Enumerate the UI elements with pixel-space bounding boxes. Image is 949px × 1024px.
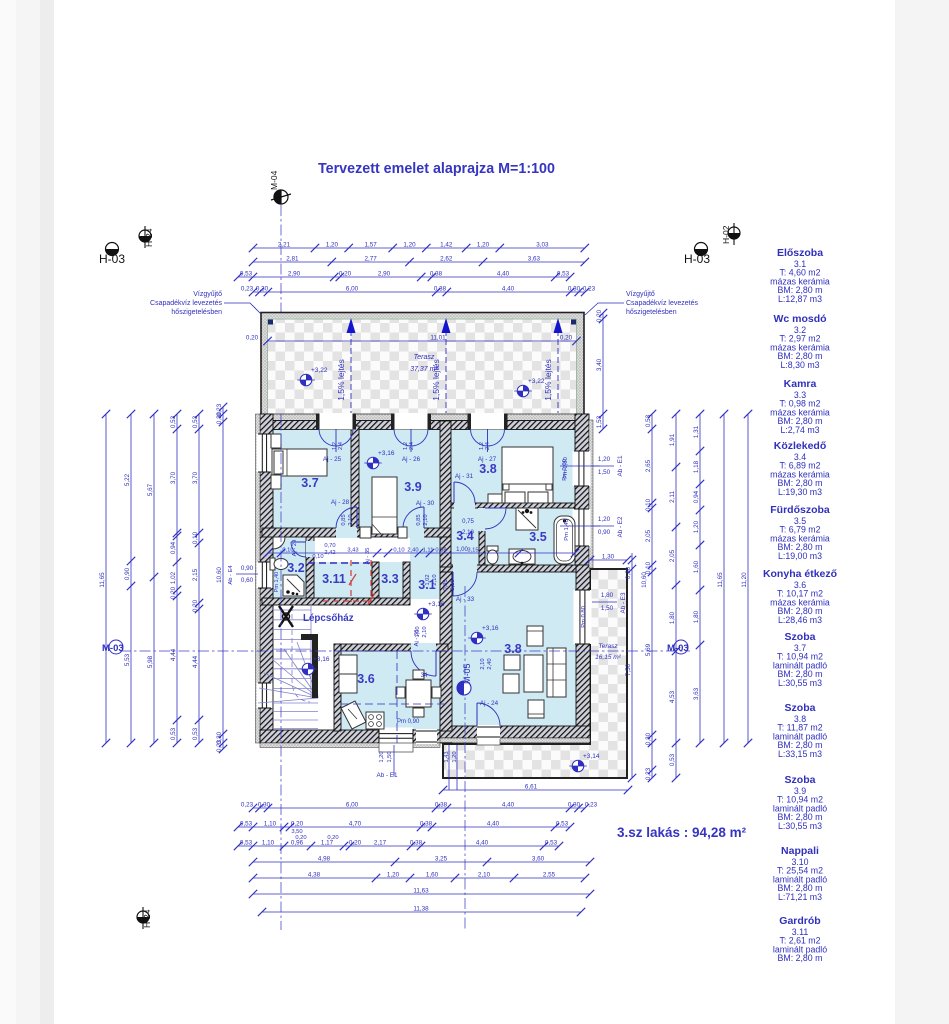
svg-text:Szoba: Szoba [785,702,816,714]
svg-text:Csapadékvíz levezetés: Csapadékvíz levezetés [150,300,222,307]
svg-text:0,90: 0,90 [241,565,254,572]
svg-text:1,80: 1,80 [669,611,676,624]
svg-text:Gardrób: Gardrób [779,915,820,927]
svg-text:5,67: 5,67 [147,483,154,496]
svg-text:0,38: 0,38 [434,286,447,293]
svg-text:2,10: 2,10 [432,574,438,585]
svg-text:1,50: 1,50 [387,751,393,762]
svg-text:2,10: 2,10 [480,658,486,669]
svg-text:Kamra: Kamra [784,378,817,390]
svg-text:H-24: H-24 [142,909,152,928]
svg-text:Aj - 29: Aj - 29 [292,540,298,557]
svg-text:2,17: 2,17 [374,840,387,847]
svg-text:2,05: 2,05 [669,549,676,562]
svg-text:4,40: 4,40 [502,286,515,293]
svg-text:Ab - E2: Ab - E2 [617,516,624,537]
svg-text:11,63: 11,63 [413,888,429,895]
svg-text:1,50: 1,50 [598,469,611,476]
svg-text:2,15: 2,15 [192,568,199,581]
svg-text:3.8: 3.8 [479,462,496,476]
svg-text:Aj - 25: Aj - 25 [323,456,342,463]
svg-text:2,10: 2,10 [423,514,429,525]
svg-text:3,63: 3,63 [528,256,541,263]
svg-text:1,02: 1,02 [170,571,177,584]
svg-text:2,90: 2,90 [378,271,391,278]
svg-text:5,98: 5,98 [147,655,154,668]
svg-text:0,20: 0,20 [291,821,304,828]
svg-text:3.3: 3.3 [381,572,398,586]
svg-text:1,11: 1,11 [423,548,434,554]
svg-text:2,90: 2,90 [288,271,301,278]
svg-text:L:2,74 m3: L:2,74 m3 [780,425,819,435]
svg-text:L:30,55 m3: L:30,55 m3 [778,678,822,688]
svg-text:0,20: 0,20 [349,840,362,847]
svg-text:hőszigetelésben: hőszigetelésben [626,309,677,316]
svg-text:0,23: 0,23 [216,739,223,752]
svg-text:11,01: 11,01 [430,335,446,342]
svg-text:H-03: H-03 [684,252,710,266]
svg-text:+3,16: +3,16 [428,601,445,608]
svg-text:3,60: 3,60 [532,856,545,863]
svg-text:L:19,00 m3: L:19,00 m3 [778,551,822,561]
svg-text:0,90: 0,90 [598,529,611,536]
svg-text:0,30: 0,30 [568,286,581,293]
svg-text:Vízgyűjtő: Vízgyűjtő [626,291,655,298]
svg-text:0,90: 0,90 [124,567,131,580]
svg-text:0,30: 0,30 [645,732,652,745]
svg-text:3.sz lakás : 94,28 m²: 3.sz lakás : 94,28 m² [617,825,747,840]
svg-text:Közlekedő: Közlekedő [774,440,827,452]
svg-text:0,85: 0,85 [443,579,449,590]
svg-text:2,55: 2,55 [543,872,556,879]
svg-text:1,30: 1,30 [602,554,615,561]
svg-text:M-04: M-04 [269,170,279,190]
svg-text:2,21: 2,21 [278,242,291,249]
svg-text:1,20: 1,20 [598,516,611,523]
svg-text:0,20: 0,20 [192,599,199,612]
svg-text:0,23: 0,23 [583,286,596,293]
svg-text:0,23: 0,23 [241,802,254,809]
svg-text:4,44: 4,44 [192,655,199,668]
svg-text:2,10: 2,10 [462,530,474,536]
svg-text:11,65: 11,65 [717,572,724,588]
svg-text:0,53: 0,53 [669,753,676,766]
svg-text:4,70: 4,70 [349,821,362,828]
svg-text:3.6: 3.6 [357,672,374,686]
svg-text:0,75: 0,75 [462,519,474,525]
svg-text:10,60: 10,60 [641,572,648,588]
svg-text:Csapadékvíz levezetés: Csapadékvíz levezetés [626,300,698,307]
svg-text:H-02: H-02 [721,225,731,244]
svg-text:Lépcsőház: Lépcsőház [303,613,354,624]
svg-text:0,53: 0,53 [556,821,569,828]
svg-text:2,4: 2,4 [338,441,344,450]
svg-text:2,4: 2,4 [409,441,415,450]
svg-text:Terasz: Terasz [414,354,435,361]
svg-text:2,62: 2,62 [440,256,453,263]
svg-text:0,53: 0,53 [170,727,177,740]
svg-text:Ab - E4: Ab - E4 [228,565,234,585]
svg-text:1,53: 1,53 [596,415,603,428]
svg-text:0,60: 0,60 [241,577,254,584]
svg-text:4,98: 4,98 [318,856,331,863]
svg-text:Fürdőszoba: Fürdőszoba [770,504,830,516]
svg-text:5,69: 5,69 [645,643,652,656]
svg-text:10,60: 10,60 [216,567,223,583]
svg-text:2,05: 2,05 [645,529,652,542]
svg-text:0,10: 0,10 [393,548,404,554]
svg-text:2,11: 2,11 [669,491,676,503]
svg-text:Pm 1,40: Pm 1,40 [564,519,570,541]
svg-text:Aj - 30: Aj - 30 [416,500,435,507]
svg-text:L:30,55 m3: L:30,55 m3 [778,821,822,831]
svg-text:1,5% lejtés: 1,5% lejtés [543,359,553,401]
svg-text:0,30: 0,30 [256,286,269,293]
svg-text:Ab - E3: Ab - E3 [620,592,627,613]
svg-text:1,00: 1,00 [456,547,468,553]
svg-text:1,20: 1,20 [379,751,385,762]
svg-text:2,4: 2,4 [485,441,491,450]
svg-text:Aj - 31: Aj - 31 [455,473,474,480]
svg-text:1,20: 1,20 [477,242,490,249]
svg-text:1,20: 1,20 [403,242,416,249]
svg-text:3,25: 3,25 [435,856,448,863]
svg-text:Terasz: Terasz [598,643,618,650]
svg-text:1,42: 1,42 [440,242,453,249]
svg-text:6,00: 6,00 [346,286,359,293]
svg-text:4,40: 4,40 [476,840,489,847]
svg-text:2,42: 2,42 [324,550,335,556]
svg-text:4,40: 4,40 [497,271,510,278]
svg-text:1,91: 1,91 [669,433,676,446]
svg-text:11,20: 11,20 [741,572,748,588]
svg-text:1,5% lejtés: 1,5% lejtés [336,359,346,401]
svg-text:3,03: 3,03 [536,242,549,249]
svg-text:Ab - E1: Ab - E1 [617,455,624,476]
svg-text:Vízgyűjtő: Vízgyűjtő [193,291,222,298]
svg-text:+3,16: +3,16 [482,625,499,632]
svg-text:+3,16: +3,16 [313,656,330,663]
svg-text:Pm 0,80: Pm 0,80 [563,457,569,479]
svg-text:34: 34 [421,673,428,679]
svg-text:4,40: 4,40 [502,802,515,809]
svg-text:L:71,21 m3: L:71,21 m3 [778,892,822,902]
svg-text:4,44: 4,44 [170,648,177,661]
svg-text:2,10: 2,10 [422,626,428,637]
svg-text:0,30: 0,30 [568,802,581,809]
svg-text:0,38: 0,38 [410,840,423,847]
svg-text:3.8: 3.8 [504,642,521,656]
svg-text:0,30: 0,30 [258,802,271,809]
svg-text:2,40: 2,40 [407,548,418,554]
svg-text:1,10: 1,10 [264,821,277,828]
svg-text:Nappali: Nappali [781,845,819,857]
svg-text:Előszoba: Előszoba [777,247,823,259]
svg-text:1,20: 1,20 [693,520,700,533]
svg-text:Pm 1,40: Pm 1,40 [274,572,280,592]
svg-text:M-03: M-03 [102,643,124,654]
svg-text:3,70: 3,70 [192,471,199,484]
svg-text:0,20: 0,20 [170,586,177,599]
svg-text:Aj - 26: Aj - 26 [402,456,421,463]
svg-text:0,85: 0,85 [341,514,347,525]
svg-text:0,20: 0,20 [339,271,352,278]
svg-text:0,10: 0,10 [645,498,652,511]
svg-text:Tervezett emelet alaprajza M=: Tervezett emelet alaprajza M=1:100 [318,161,555,177]
svg-text:6,00: 6,00 [346,802,359,809]
svg-text:Ab - E1: Ab - E1 [377,772,398,779]
svg-text:3.2: 3.2 [287,561,304,575]
svg-text:0,30: 0,30 [625,566,632,579]
svg-text:6,61: 6,61 [525,784,538,791]
svg-text:3.7: 3.7 [301,476,318,490]
svg-text:16,15 m²: 16,15 m² [595,654,621,661]
svg-text:0,53: 0,53 [170,415,177,428]
svg-text:0,96: 0,96 [291,840,304,847]
svg-text:Konyha étkező: Konyha étkező [763,568,837,580]
svg-text:1,10: 1,10 [262,840,275,847]
svg-text:Aj - 27: Aj - 27 [478,456,497,463]
svg-text:3,70: 3,70 [170,471,177,484]
svg-text:0,20: 0,20 [560,335,573,342]
svg-text:1,18: 1,18 [693,460,700,473]
svg-text:2,10: 2,10 [348,514,354,525]
svg-text:2,40: 2,40 [487,658,493,669]
svg-text:0,38: 0,38 [435,802,448,809]
svg-text:Szoba: Szoba [785,774,816,786]
svg-text:M-05: M-05 [462,663,472,684]
svg-text:0,53: 0,53 [192,415,199,428]
svg-text:Aj - 35: Aj - 35 [365,548,371,565]
svg-text:0,38: 0,38 [420,821,433,828]
svg-text:BM: 2,80 m: BM: 2,80 m [778,953,823,963]
svg-text:4,40: 4,40 [487,821,500,828]
svg-text:0,23: 0,23 [585,802,598,809]
svg-text:L:12,87 m3: L:12,87 m3 [778,294,822,304]
svg-text:Aj - 33: Aj - 33 [456,596,475,603]
svg-text:0,53: 0,53 [545,840,558,847]
svg-text:1,17: 1,17 [321,840,334,847]
svg-text:0,20: 0,20 [596,309,603,322]
svg-text:2,77: 2,77 [365,256,378,263]
svg-text:hőszigetelésben: hőszigetelésben [171,309,222,316]
svg-text:3,50: 3,50 [291,829,302,835]
svg-text:0,38: 0,38 [430,271,443,278]
svg-text:0,70: 0,70 [324,543,335,549]
svg-text:1,50: 1,50 [601,605,614,612]
svg-text:3.11: 3.11 [322,572,346,586]
svg-text:+3,22: +3,22 [311,367,328,374]
svg-text:Aj - 28: Aj - 28 [331,499,350,506]
svg-text:1,80: 1,80 [601,592,614,599]
svg-text:5,53: 5,53 [124,653,131,666]
svg-text:3.5: 3.5 [529,530,546,544]
svg-text:H-24: H-24 [144,228,154,247]
svg-text:+3,16: +3,16 [378,450,395,457]
svg-text:11,65: 11,65 [99,572,106,588]
svg-text:2,10: 2,10 [450,579,456,590]
svg-text:11,38: 11,38 [413,906,429,913]
svg-text:1,20: 1,20 [598,456,611,463]
svg-text:2,81: 2,81 [286,256,299,263]
svg-text:4,53: 4,53 [669,690,676,703]
svg-text:1,57: 1,57 [365,242,378,249]
svg-text:1,31: 1,31 [693,425,700,438]
svg-text:L:28,46 m3: L:28,46 m3 [778,615,822,625]
svg-text:0,94: 0,94 [693,490,700,503]
svg-text:0,53: 0,53 [240,840,253,847]
svg-text:7,50: 7,50 [625,663,632,676]
svg-text:Aj - 36: Aj - 36 [414,630,420,647]
svg-text:Aj - 24: Aj - 24 [480,700,499,707]
svg-text:2,65: 2,65 [645,459,652,472]
svg-text:1,20: 1,20 [387,872,400,879]
svg-text:1,02: 1,02 [425,574,431,585]
svg-text:5,22: 5,22 [124,473,131,486]
svg-text:0,23: 0,23 [645,767,652,780]
svg-text:Pm 0,80: Pm 0,80 [581,606,587,628]
svg-text:0,94: 0,94 [170,541,177,554]
svg-text:Wc mosdó: Wc mosdó [773,313,826,325]
svg-text:0,23: 0,23 [241,286,254,293]
svg-text:2,10: 2,10 [478,872,491,879]
svg-text:1,20: 1,20 [326,242,339,249]
svg-text:+3,14: +3,14 [583,753,600,760]
svg-text:0,30: 0,30 [216,411,223,424]
svg-text:3,43: 3,43 [347,548,358,554]
svg-text:L:33,15 m3: L:33,15 m3 [778,749,822,759]
svg-text:0,20: 0,20 [246,335,259,342]
svg-text:1,60: 1,60 [693,560,700,573]
svg-text:1,60: 1,60 [426,872,439,879]
svg-text:Szoba: Szoba [785,631,816,643]
svg-text:3.9: 3.9 [404,480,421,494]
svg-text:Pm 0,90: Pm 0,90 [397,719,420,725]
svg-text:0,10: 0,10 [312,554,323,560]
svg-text:3,40: 3,40 [596,358,603,371]
svg-text:3,15: 3,15 [467,548,478,554]
svg-text:0,53: 0,53 [645,414,652,427]
svg-text:1,80: 1,80 [693,610,700,623]
svg-text:37,37 m²: 37,37 m² [410,366,438,373]
svg-text:+3,22: +3,22 [528,378,545,385]
svg-text:0,10: 0,10 [192,531,199,544]
svg-text:0,38: 0,38 [435,548,446,554]
svg-text:L:8,30 m3: L:8,30 m3 [780,360,819,370]
svg-text:0,53: 0,53 [240,271,253,278]
svg-text:0,53: 0,53 [240,821,253,828]
svg-text:3,63: 3,63 [693,687,700,700]
svg-text:4,38: 4,38 [308,872,321,879]
svg-text:H-03: H-03 [99,252,125,266]
svg-text:0,85: 0,85 [416,514,422,525]
svg-text:L:19,30 m3: L:19,30 m3 [778,487,822,497]
svg-text:0,53: 0,53 [192,727,199,740]
svg-text:0,53: 0,53 [557,271,570,278]
